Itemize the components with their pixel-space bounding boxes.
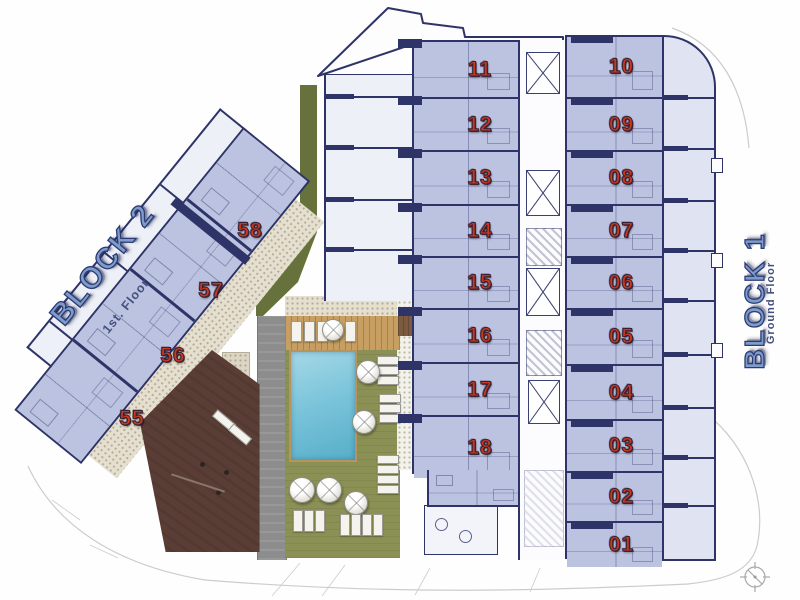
sun-lounger <box>377 356 399 365</box>
apartment-unit[interactable]: 13 <box>414 152 520 206</box>
stairwell-icon <box>528 380 560 424</box>
unit-number: 11 <box>442 58 492 82</box>
unit-number: 18 <box>441 436 492 460</box>
sun-lounger <box>373 514 383 536</box>
parasol-icon <box>322 319 344 341</box>
unit-number: 13 <box>441 166 492 190</box>
parasol-icon <box>352 410 376 434</box>
elevator-shaft-icon <box>526 330 562 376</box>
unit-number[interactable]: 58 <box>237 219 262 243</box>
parasol-icon <box>316 477 342 503</box>
stairwell-icon <box>526 268 560 316</box>
stairwell-icon <box>526 170 560 216</box>
apartment-unit[interactable]: 11 <box>414 42 520 99</box>
sun-lounger <box>304 321 315 342</box>
sun-lounger <box>377 485 399 494</box>
apartment-unit[interactable]: 17 <box>414 364 520 417</box>
apartment-unit-extension[interactable] <box>427 470 524 507</box>
sun-lounger <box>293 510 303 532</box>
apartment-unit[interactable]: 05 <box>567 310 662 366</box>
swimming-pool <box>289 350 357 462</box>
apartment-unit[interactable]: 15 <box>414 258 520 310</box>
sun-lounger <box>315 510 325 532</box>
parasol-icon <box>289 477 315 503</box>
unit-number: 06 <box>595 271 634 295</box>
unit-number: 10 <box>595 55 634 79</box>
unit-number: 04 <box>595 381 634 405</box>
unit-number[interactable]: 56 <box>160 344 185 368</box>
unit-number[interactable]: 55 <box>119 407 144 431</box>
sun-lounger <box>377 465 399 474</box>
site-plan: 58 57 56 55 11 12 13 14 15 16 17 18 <box>0 0 800 600</box>
unit-number: 01 <box>595 533 634 557</box>
block1-subtitle: Ground Floor <box>765 248 777 358</box>
sun-lounger <box>377 455 399 464</box>
unit-number: 16 <box>441 324 492 348</box>
block1-left-terraces <box>324 74 414 301</box>
parasol-icon <box>344 491 368 515</box>
apartment-unit[interactable]: 09 <box>567 99 662 152</box>
parasol-icon <box>356 360 380 384</box>
table-icon <box>459 530 472 543</box>
sun-lounger <box>345 321 356 342</box>
entrance-hall <box>524 470 564 547</box>
unit-number[interactable]: 57 <box>198 279 223 303</box>
bench <box>228 423 252 445</box>
balcony-bump <box>711 158 723 173</box>
stairwell-icon <box>526 52 560 94</box>
table-icon <box>435 518 448 531</box>
apartment-unit[interactable]: 10 <box>567 37 662 99</box>
unit-number: 08 <box>595 166 634 190</box>
apartment-unit[interactable]: 08 <box>567 152 662 206</box>
sun-lounger <box>379 404 401 413</box>
sun-lounger <box>377 475 399 484</box>
unit-number: 15 <box>441 271 492 295</box>
unit-number: 02 <box>595 485 634 509</box>
block1-corridor <box>518 40 569 560</box>
sun-lounger <box>379 394 401 403</box>
sun-lounger <box>340 514 350 536</box>
apartment-unit[interactable]: 07 <box>567 206 662 258</box>
apartment-unit[interactable]: 18 <box>414 417 520 478</box>
sun-lounger <box>362 514 372 536</box>
unit-number: 03 <box>595 434 634 458</box>
sun-lounger <box>351 514 361 536</box>
unit-number: 05 <box>595 325 634 349</box>
apartment-unit[interactable]: 06 <box>567 258 662 310</box>
apartment-unit[interactable]: 16 <box>414 310 520 364</box>
unit-number: 12 <box>441 113 492 137</box>
unit-number: 07 <box>595 219 634 243</box>
block1-left-unit-column: 11 12 13 14 15 16 17 18 <box>412 40 522 474</box>
block1-right-terraces <box>660 35 716 561</box>
sun-lounger <box>291 321 302 342</box>
sun-lounger <box>377 366 399 375</box>
block1-right-unit-column: 10 09 08 07 06 05 04 03 02 01 <box>565 35 664 559</box>
ground-terrace <box>424 505 498 555</box>
gray-walkway <box>257 316 287 560</box>
balcony-bump <box>711 343 723 358</box>
sun-lounger <box>377 376 399 385</box>
see-saw <box>171 473 225 492</box>
apartment-unit[interactable]: 01 <box>567 523 662 567</box>
apartment-unit[interactable]: 14 <box>414 206 520 258</box>
balcony-bump <box>711 253 723 268</box>
sun-lounger <box>304 510 314 532</box>
elevator-shaft-icon <box>526 228 562 266</box>
unit-number: 17 <box>441 378 492 402</box>
unit-number: 09 <box>595 113 634 137</box>
apartment-unit[interactable]: 03 <box>567 421 662 473</box>
play-equipment <box>200 462 205 467</box>
play-equipment <box>224 470 229 475</box>
apartment-unit[interactable]: 02 <box>567 473 662 523</box>
unit-number: 14 <box>441 219 492 243</box>
apartment-unit[interactable]: 04 <box>567 366 662 421</box>
apartment-unit[interactable]: 12 <box>414 99 520 152</box>
